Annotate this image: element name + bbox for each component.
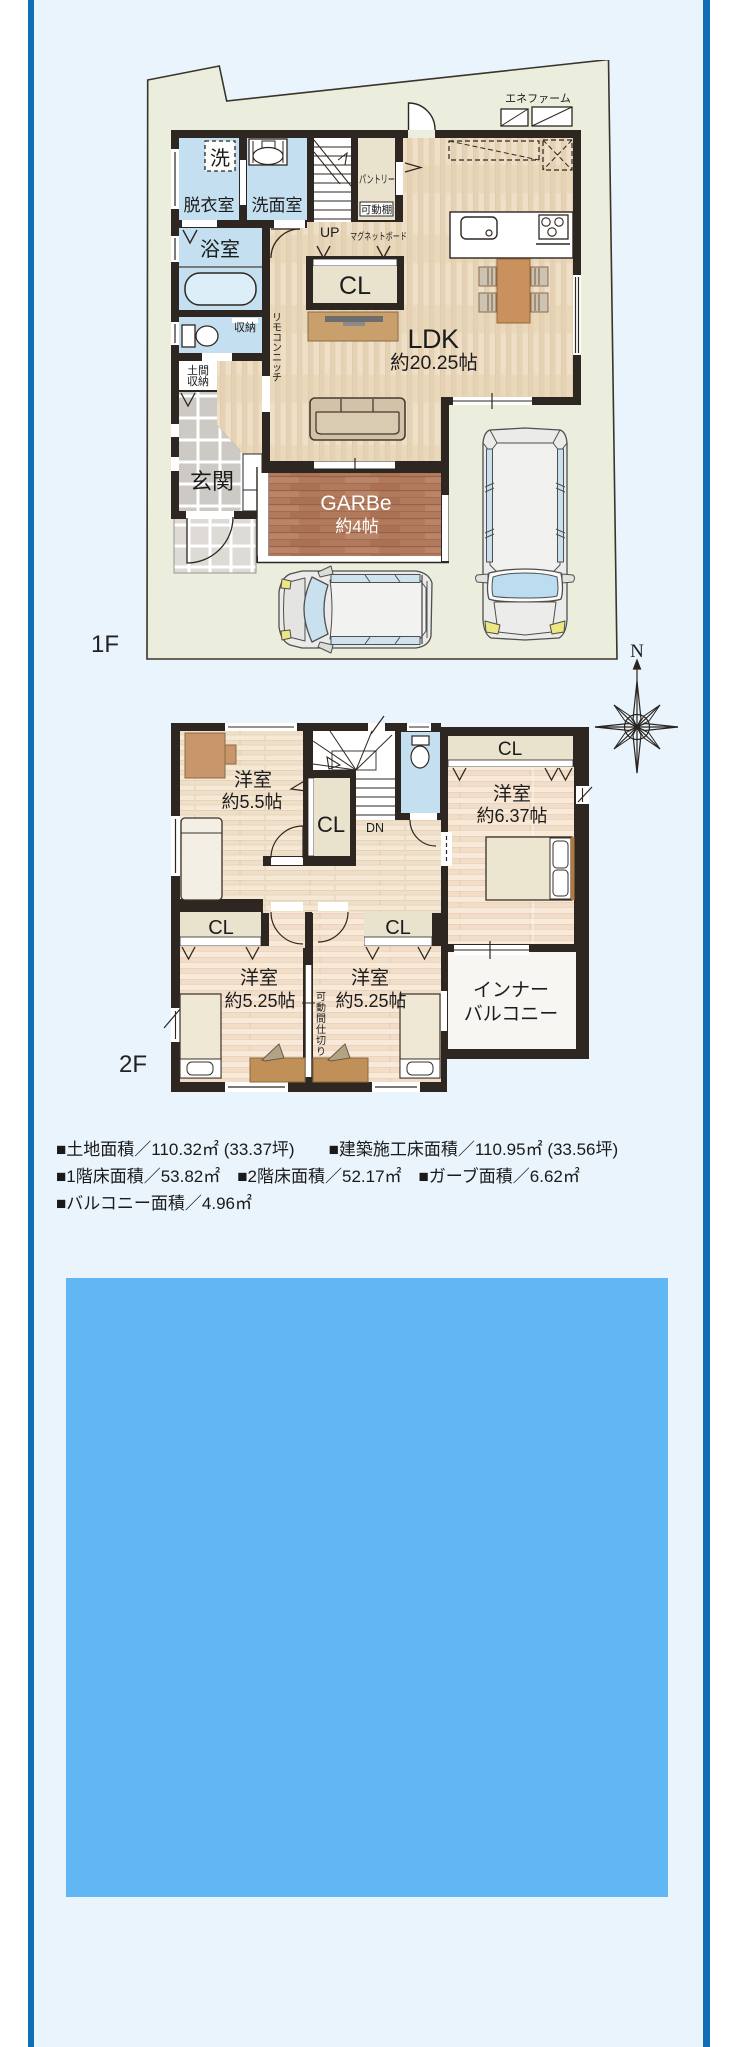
svg-text:CL: CL <box>339 272 371 300</box>
svg-text:バルコニー: バルコニー <box>464 1004 559 1025</box>
svg-text:玄関: 玄関 <box>190 469 234 494</box>
svg-text:洋室: 洋室 <box>240 967 278 989</box>
svg-text:チ: チ <box>272 372 282 384</box>
svg-text:LDK: LDK <box>407 324 459 354</box>
svg-text:洗面室: 洗面室 <box>252 196 303 215</box>
svg-text:N: N <box>630 641 644 662</box>
svg-text:DN: DN <box>366 821 384 835</box>
svg-text:洋室: 洋室 <box>493 783 531 805</box>
svg-text:約5.25帖: 約5.25帖 <box>335 991 406 1011</box>
svg-text:GARBe: GARBe <box>320 492 391 515</box>
svg-text:動: 動 <box>316 1001 326 1014</box>
svg-text:仕: 仕 <box>316 1023 326 1036</box>
svg-text:可: 可 <box>316 992 326 1003</box>
svg-text:約20.25帖: 約20.25帖 <box>390 352 478 374</box>
svg-text:約6.37帖: 約6.37帖 <box>476 806 547 826</box>
svg-text:可動棚: 可動棚 <box>361 203 393 216</box>
svg-text:パントリー: パントリー <box>359 173 395 186</box>
svg-text:洋室: 洋室 <box>234 769 272 791</box>
svg-text:切: 切 <box>316 1035 326 1047</box>
svg-text:り: り <box>316 1046 326 1058</box>
svg-text:浴室: 浴室 <box>200 238 240 261</box>
svg-text:CL: CL <box>385 917 411 939</box>
svg-text:マグネットボード: マグネットボード <box>350 230 407 243</box>
svg-text:CL: CL <box>208 917 234 939</box>
svg-text:約5.25帖: 約5.25帖 <box>224 991 295 1011</box>
svg-text:洋室: 洋室 <box>351 967 389 989</box>
svg-text:収納: 収納 <box>187 375 209 388</box>
svg-text:洗: 洗 <box>210 147 230 170</box>
svg-text:脱衣室: 脱衣室 <box>184 196 235 215</box>
svg-text:CL: CL <box>498 739 522 760</box>
svg-text:インナー: インナー <box>473 980 549 1001</box>
svg-text:エネファーム: エネファーム <box>505 92 571 105</box>
svg-text:約5.5帖: 約5.5帖 <box>221 792 282 812</box>
svg-text:UP: UP <box>320 224 339 240</box>
svg-text:収納: 収納 <box>234 321 256 334</box>
svg-text:間: 間 <box>316 1013 326 1025</box>
svg-text:CL: CL <box>317 812 345 837</box>
svg-text:約4帖: 約4帖 <box>335 517 378 536</box>
